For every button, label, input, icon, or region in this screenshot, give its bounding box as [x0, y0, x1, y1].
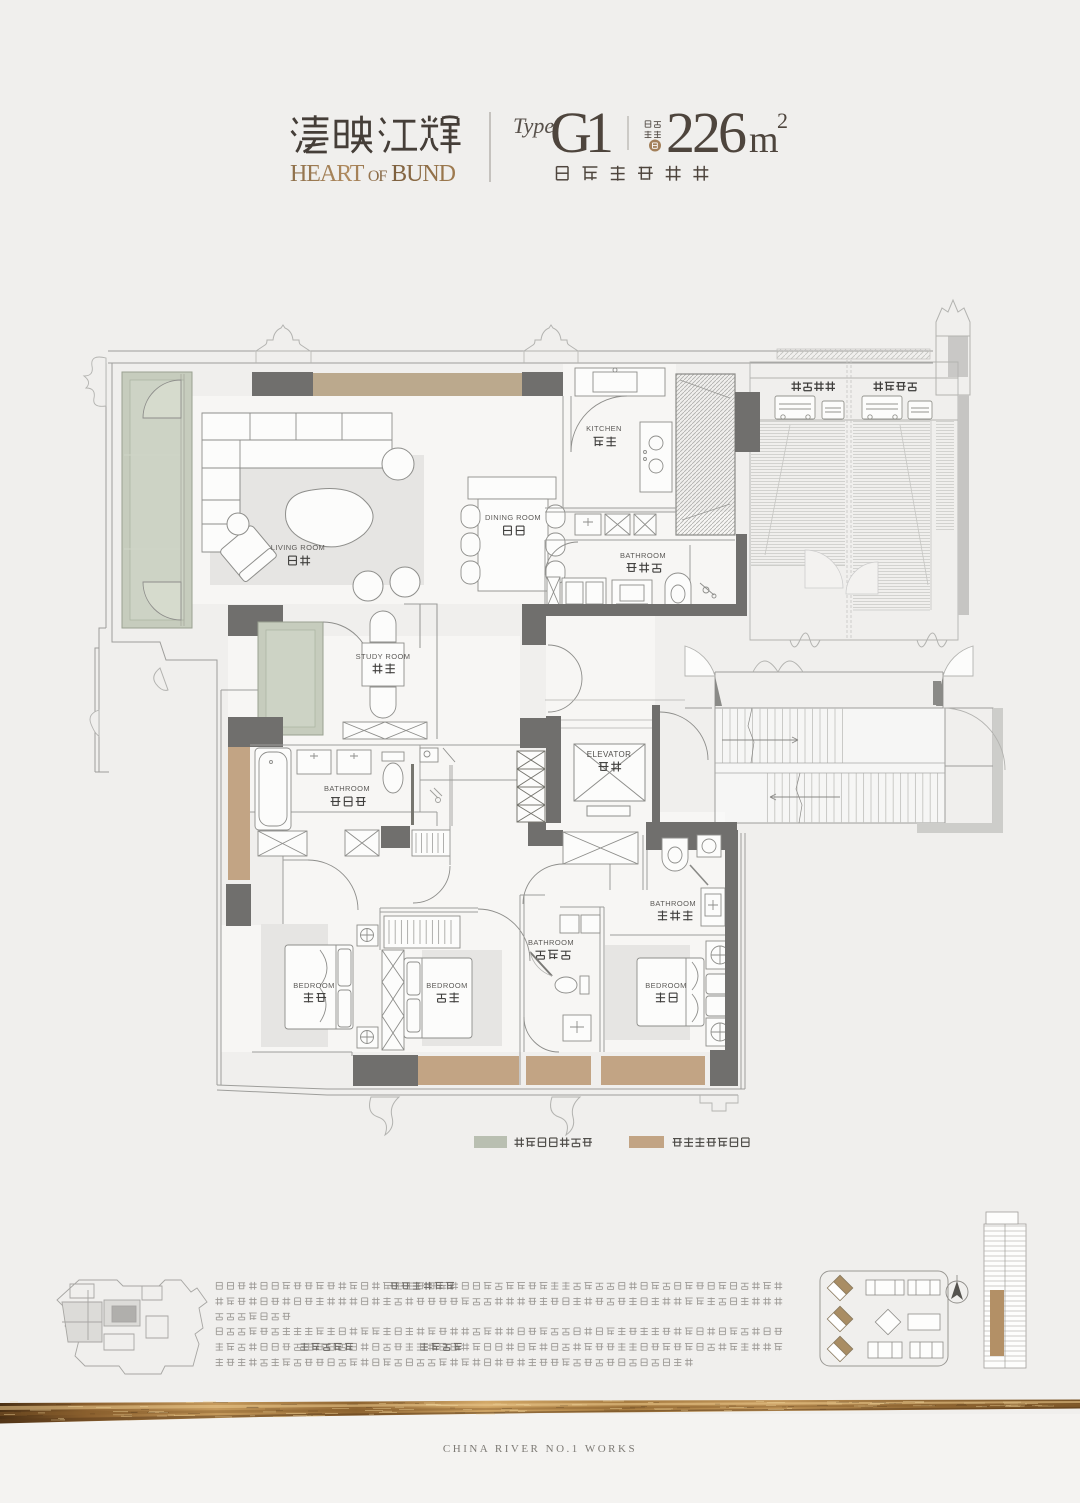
- svg-text:BEDROOM: BEDROOM: [426, 981, 468, 990]
- svg-text:KITCHEN: KITCHEN: [586, 424, 622, 433]
- svg-text:m: m: [749, 119, 779, 161]
- svg-text:CHINA RIVER NO.1 WORKS: CHINA RIVER NO.1 WORKS: [443, 1443, 637, 1455]
- svg-text:STUDY ROOM: STUDY ROOM: [356, 652, 411, 661]
- svg-text:BATHROOM: BATHROOM: [324, 784, 370, 793]
- svg-text:226: 226: [666, 100, 747, 165]
- svg-text:Type: Type: [513, 113, 554, 138]
- svg-text:G1: G1: [550, 100, 614, 165]
- svg-text:BATHROOM: BATHROOM: [620, 551, 666, 560]
- svg-text:BEDROOM: BEDROOM: [293, 981, 335, 990]
- svg-text:DINING ROOM: DINING ROOM: [485, 513, 541, 522]
- svg-text:BEDROOM: BEDROOM: [645, 981, 687, 990]
- svg-text:BATHROOM: BATHROOM: [650, 899, 696, 908]
- svg-text:2: 2: [777, 108, 788, 133]
- svg-text:ELEVATOR: ELEVATOR: [587, 750, 632, 759]
- svg-text:LIVING ROOM: LIVING ROOM: [271, 543, 325, 552]
- svg-text:BATHROOM: BATHROOM: [528, 938, 574, 947]
